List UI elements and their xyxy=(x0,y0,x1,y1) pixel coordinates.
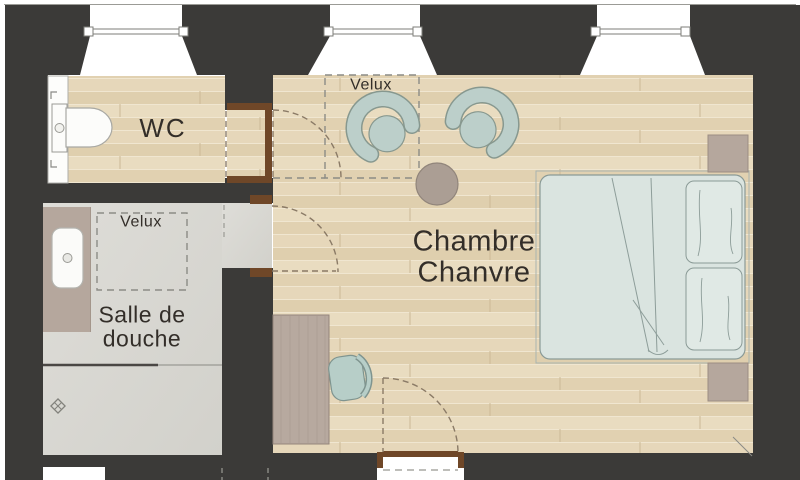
shower-room-label: Salle de douche xyxy=(98,303,185,352)
entrance-jamb-right xyxy=(458,452,464,468)
wall-left-upper xyxy=(5,5,48,203)
pillow-1 xyxy=(686,181,742,263)
entrance-threshold xyxy=(383,451,458,457)
pillow-2 xyxy=(686,268,742,350)
wc-room-label: WC xyxy=(139,115,186,143)
nightstand-bottom xyxy=(708,363,748,401)
wall-right xyxy=(753,5,800,480)
floor-shower-doorway xyxy=(222,203,272,268)
wall-shower-bedroom xyxy=(222,268,273,455)
window-3 xyxy=(580,5,705,75)
double-bed xyxy=(536,171,749,363)
skylight-bedroom-label: Velux xyxy=(350,78,392,95)
wall-left-lower xyxy=(5,203,43,480)
shower-door-jamb-bottom xyxy=(250,268,272,277)
bedroom-label: Chambre Chanvre xyxy=(413,226,536,287)
entrance-jamb-left xyxy=(377,452,383,468)
desk xyxy=(273,315,329,444)
floor-plan-drawing xyxy=(0,0,800,480)
shower-door-jamb-top xyxy=(250,195,272,204)
wc-door-jamb-bottom xyxy=(227,176,272,183)
toilet-bowl xyxy=(66,108,112,147)
basin-drain xyxy=(63,254,72,263)
nightstand-top xyxy=(708,135,748,172)
window-1 xyxy=(80,5,197,75)
round-side-table xyxy=(416,163,458,205)
floor-wc-doorway xyxy=(227,110,268,178)
wc-door-jamb-side xyxy=(265,103,272,183)
washbasin-vanity xyxy=(43,207,91,332)
windows xyxy=(80,5,705,75)
toilet-flush-button xyxy=(55,124,64,133)
floor-plan-canvas: WC Velux Velux Salle de douche Chambre C… xyxy=(0,0,800,480)
skylight-shower-label: Velux xyxy=(120,215,162,232)
entrance-door-opening xyxy=(377,451,464,480)
wall-bottom-notch xyxy=(43,467,105,480)
